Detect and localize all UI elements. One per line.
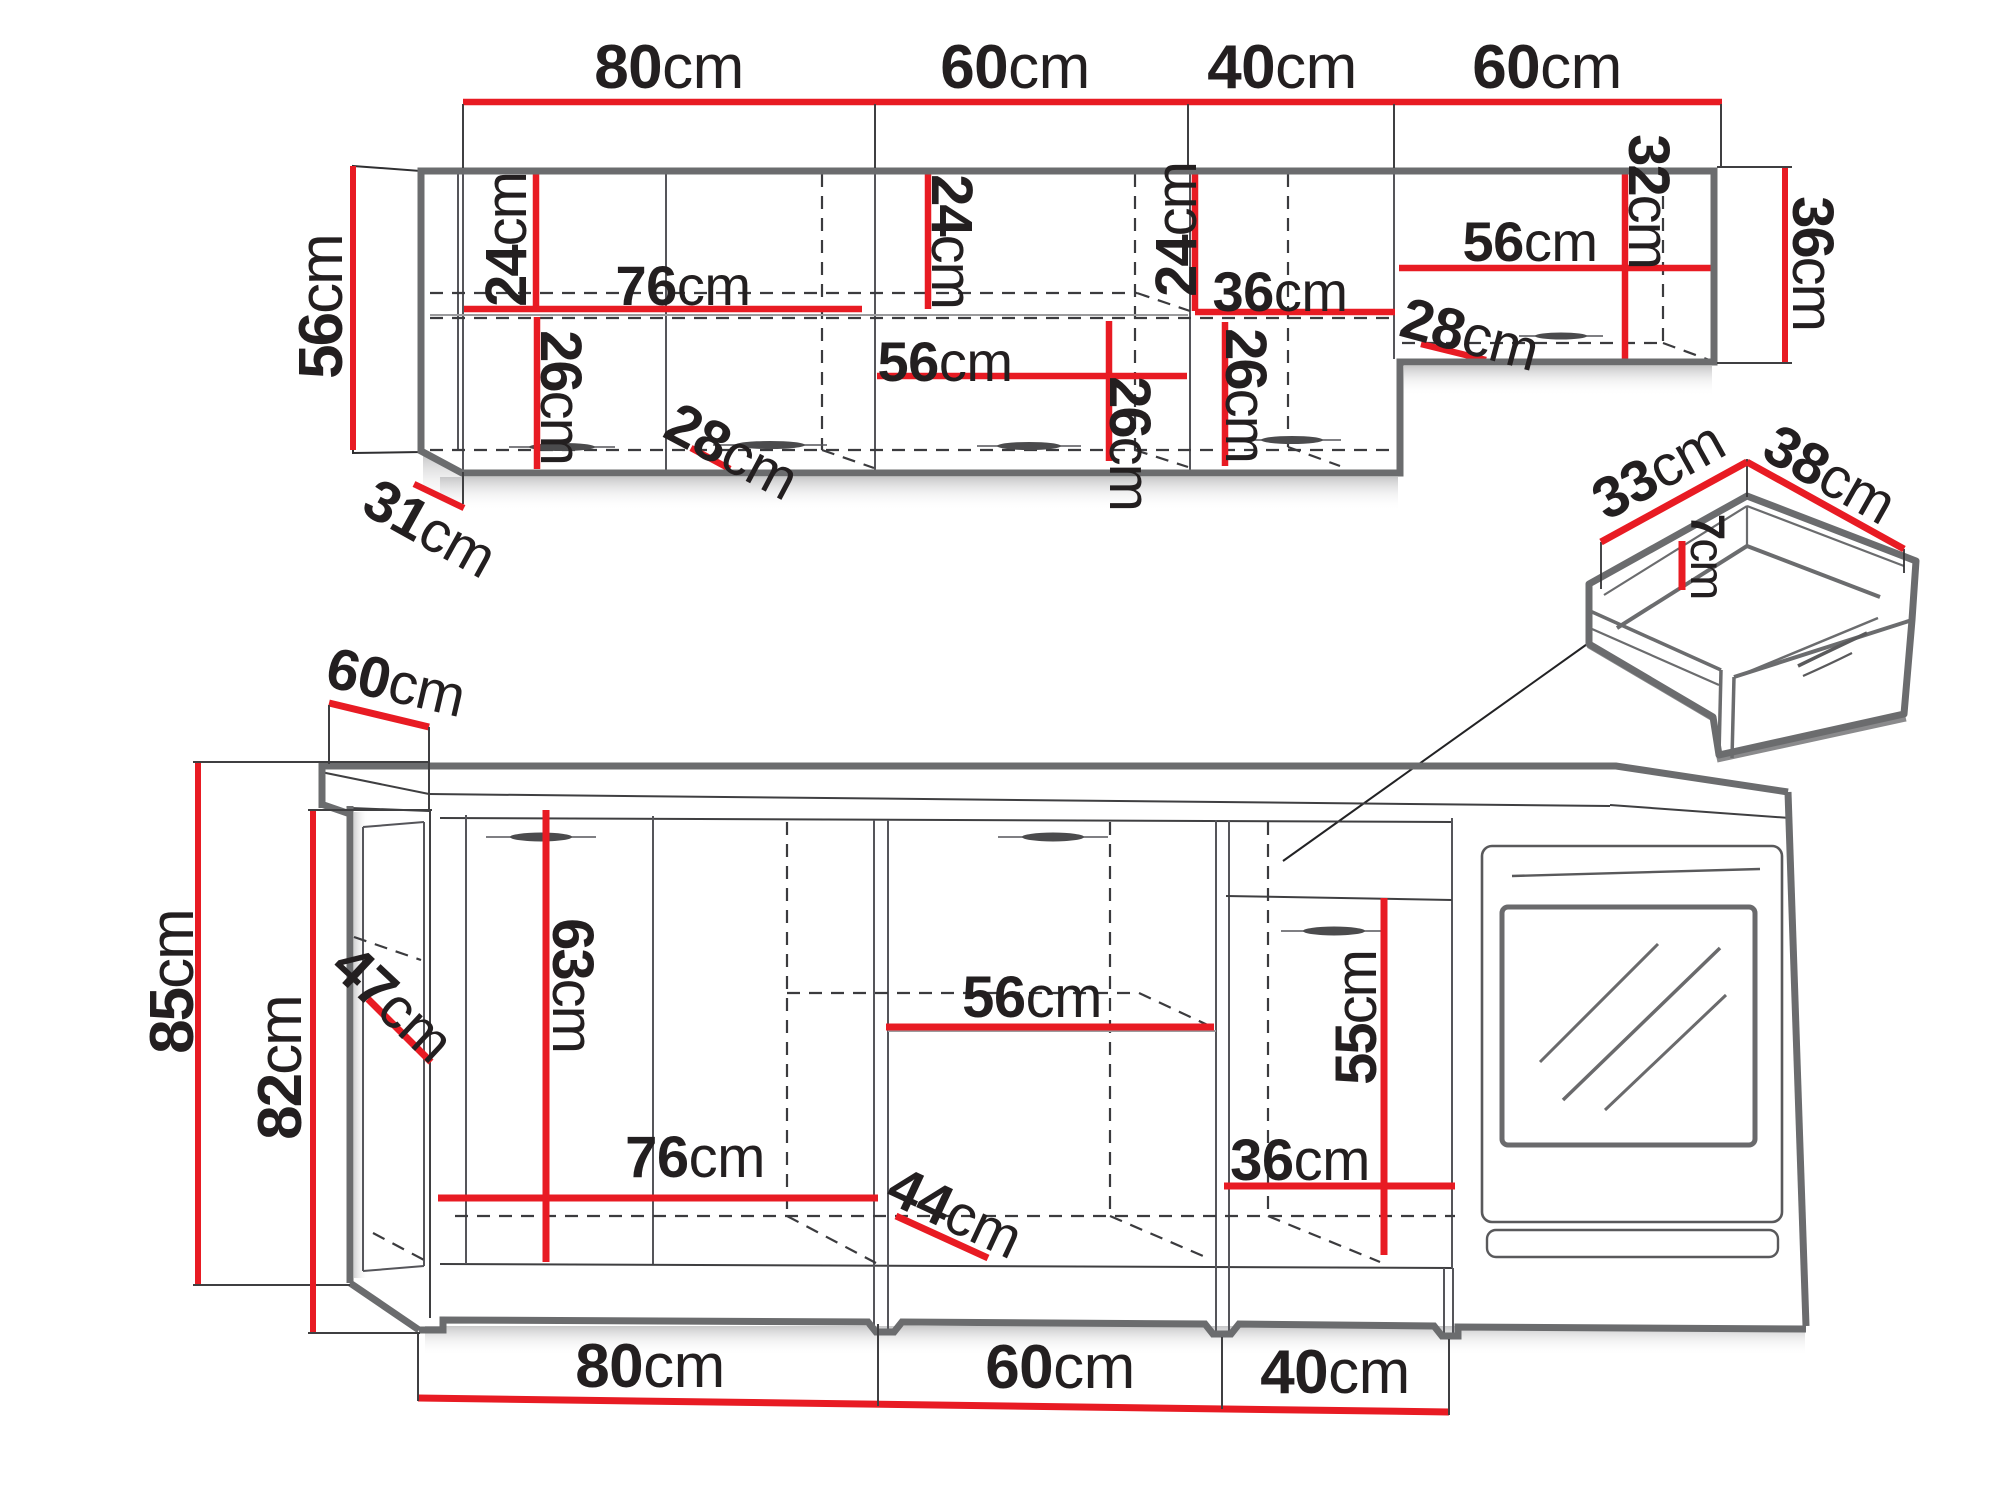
svg-text:60cm: 60cm <box>1472 33 1622 102</box>
svg-text:32cm: 32cm <box>1617 134 1682 268</box>
svg-text:26cm: 26cm <box>1098 376 1163 510</box>
svg-text:60cm: 60cm <box>940 33 1090 102</box>
svg-text:24cm: 24cm <box>920 174 985 308</box>
svg-text:55cm: 55cm <box>1324 951 1389 1085</box>
svg-text:80cm: 80cm <box>594 33 744 102</box>
svg-text:26cm: 26cm <box>529 330 594 464</box>
svg-text:40cm: 40cm <box>1207 33 1357 102</box>
svg-text:82cm: 82cm <box>246 996 315 1140</box>
svg-text:85cm: 85cm <box>138 910 207 1054</box>
svg-text:24cm: 24cm <box>474 173 539 307</box>
svg-text:24cm: 24cm <box>1144 163 1209 297</box>
svg-text:76cm: 76cm <box>616 254 751 317</box>
svg-text:40cm: 40cm <box>1260 1338 1410 1407</box>
svg-text:36cm: 36cm <box>1213 260 1348 323</box>
svg-text:7cm: 7cm <box>1681 514 1734 599</box>
svg-text:60cm: 60cm <box>985 1333 1135 1402</box>
svg-text:63cm: 63cm <box>541 918 606 1052</box>
svg-text:56cm: 56cm <box>878 330 1013 393</box>
svg-text:80cm: 80cm <box>575 1332 725 1401</box>
svg-text:26cm: 26cm <box>1214 328 1279 462</box>
svg-text:76cm: 76cm <box>625 1125 765 1190</box>
svg-text:56cm: 56cm <box>962 965 1102 1030</box>
svg-text:36cm: 36cm <box>1781 196 1846 330</box>
svg-text:36cm: 36cm <box>1230 1128 1370 1193</box>
svg-text:56cm: 56cm <box>1463 210 1598 273</box>
svg-text:56cm: 56cm <box>287 235 356 379</box>
